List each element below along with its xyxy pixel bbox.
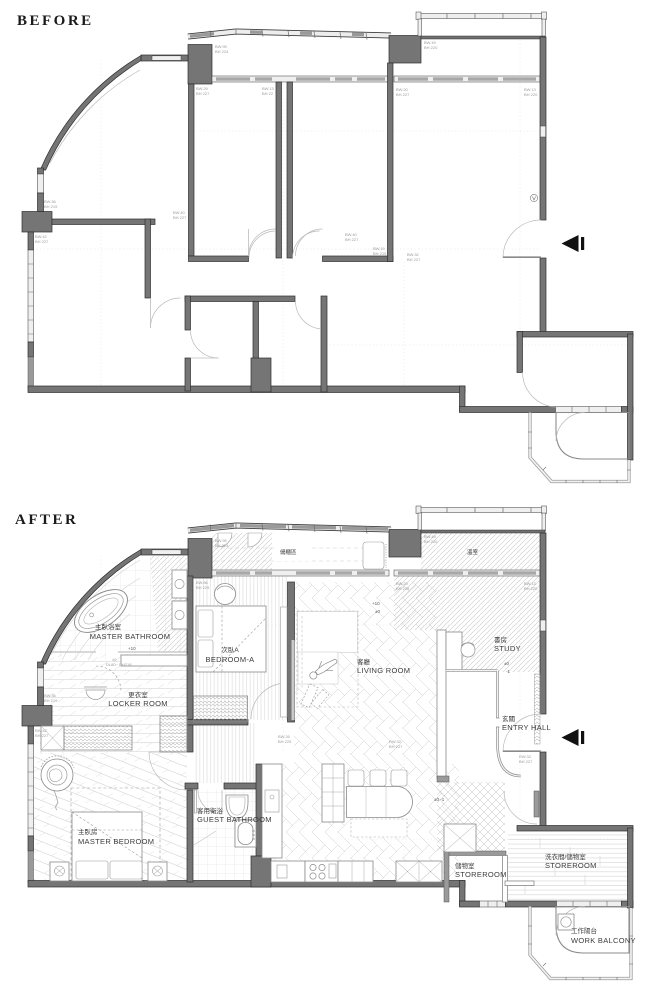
svg-text:BH 227: BH 227 <box>396 92 410 97</box>
svg-text:MASTER BEDROOM: MASTER BEDROOM <box>78 837 154 846</box>
svg-text:儲櫃區: 儲櫃區 <box>280 548 297 556</box>
svg-text:+10: +10 <box>128 646 136 651</box>
svg-text:STOREROOM: STOREROOM <box>455 870 507 879</box>
svg-text:BH 22: BH 22 <box>262 91 274 96</box>
svg-text:BH 219: BH 219 <box>44 204 58 209</box>
svg-text:更衣室: 更衣室 <box>128 690 148 699</box>
svg-text:±0 -1: ±0 -1 <box>434 797 445 802</box>
svg-text:BH 224: BH 224 <box>215 543 229 548</box>
svg-text:LOCKER ROOM: LOCKER ROOM <box>108 699 168 708</box>
svg-text:BH 227: BH 227 <box>519 759 533 764</box>
svg-text:玄關: 玄關 <box>502 714 515 723</box>
svg-text:BH 227: BH 227 <box>389 744 403 749</box>
svg-text:BEDROOM-A: BEDROOM-A <box>206 655 255 664</box>
svg-text:BH 227: BH 227 <box>407 257 421 262</box>
svg-text:主臥房: 主臥房 <box>78 827 98 836</box>
svg-text:WORK BALCONY: WORK BALCONY <box>571 936 636 945</box>
svg-text:BH 219: BH 219 <box>373 251 387 256</box>
svg-text:主臥浴室: 主臥浴室 <box>95 622 122 631</box>
svg-text:+10: +10 <box>372 601 380 606</box>
svg-text:BH 227: BH 227 <box>196 91 210 96</box>
svg-text:MASTER BATHROOM: MASTER BATHROOM <box>90 632 171 641</box>
svg-text:BH 219: BH 219 <box>44 698 58 703</box>
svg-text:儲物室: 儲物室 <box>455 861 475 870</box>
svg-text:BH 220: BH 220 <box>424 45 438 50</box>
svg-text:BH 227: BH 227 <box>345 237 359 242</box>
svg-text:ENTRY HALL: ENTRY HALL <box>502 723 551 732</box>
svg-text:BH 220: BH 220 <box>524 92 538 97</box>
svg-text:AFTER: AFTER <box>15 512 78 528</box>
svg-text:BH 227: BH 227 <box>35 733 49 738</box>
svg-text:STOREROOM: STOREROOM <box>545 861 597 870</box>
svg-text:DL80~ DH218: DL80~ DH218 <box>106 662 132 667</box>
svg-text:次臥A: 次臥A <box>221 645 239 654</box>
svg-text:BEFORE: BEFORE <box>17 13 94 29</box>
svg-text:STUDY: STUDY <box>494 644 521 653</box>
svg-text:-1: -1 <box>506 669 510 674</box>
svg-text:±0: ±0 <box>504 661 509 666</box>
svg-text:BH 220: BH 220 <box>524 586 538 591</box>
svg-text:BH 220: BH 220 <box>424 539 438 544</box>
svg-text:BH 225: BH 225 <box>278 739 292 744</box>
svg-text:客廳: 客廳 <box>357 657 371 666</box>
svg-text:BH 227: BH 227 <box>35 239 49 244</box>
svg-text:BH 224: BH 224 <box>215 49 229 54</box>
svg-text:BH 227: BH 227 <box>173 215 187 220</box>
svg-text:LIVING ROOM: LIVING ROOM <box>357 666 410 675</box>
svg-text:GUEST BATHROOM: GUEST BATHROOM <box>197 815 272 824</box>
svg-text:溫室: 溫室 <box>467 548 479 556</box>
svg-text:客用衛浴: 客用衛浴 <box>197 806 224 815</box>
svg-text:±0: ±0 <box>375 609 380 614</box>
svg-text:洗衣間/儲物室: 洗衣間/儲物室 <box>545 852 586 861</box>
svg-text:書房: 書房 <box>494 635 507 644</box>
svg-text:BH 228: BH 228 <box>396 586 410 591</box>
svg-text:BH 225: BH 225 <box>196 585 210 590</box>
svg-text:工作陽台: 工作陽台 <box>571 926 597 935</box>
